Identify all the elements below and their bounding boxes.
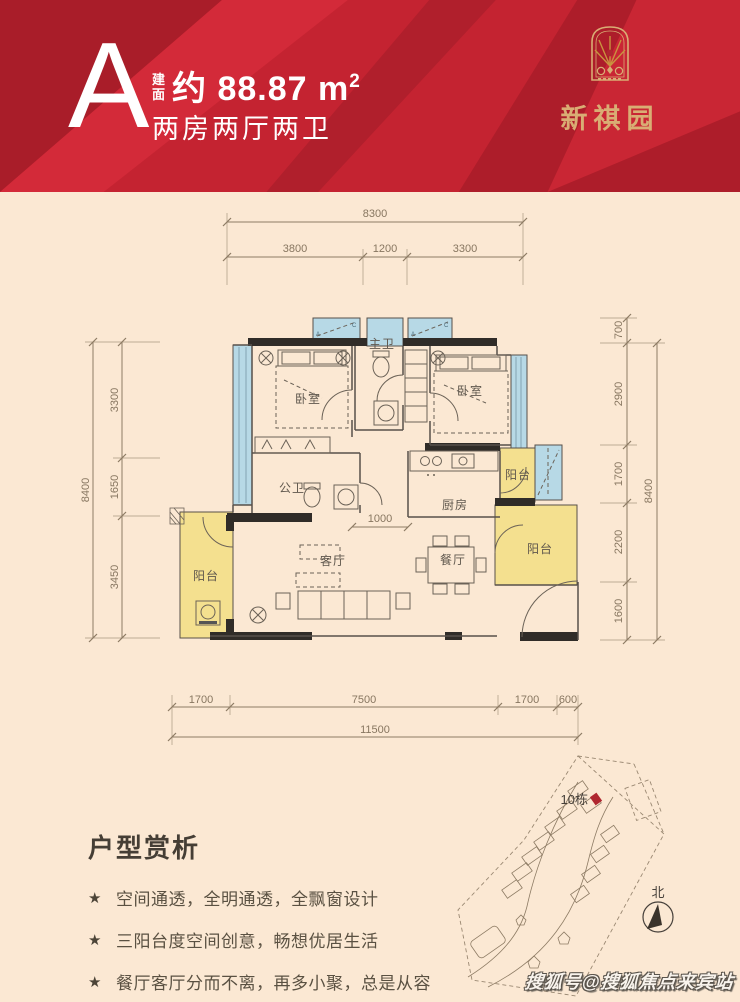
brand-logo: 新祺园: [530, 22, 690, 136]
dim-top-seg: 3800: [283, 243, 307, 255]
dimension-inner: 1000: [348, 513, 412, 531]
area-prefix-char: 面: [152, 88, 165, 102]
ac-label: C: [444, 323, 449, 329]
brand-emblem-icon: [587, 22, 633, 84]
area-prefix-char: 建: [152, 73, 165, 87]
analysis-bullet-text: 空间通透，全明通透，全飘窗设计: [116, 885, 379, 910]
layout-text: 两房两厅两卫: [152, 116, 361, 143]
room-label-bedroom-left: 卧室: [295, 391, 321, 406]
dim-bottom-seg: 600: [559, 694, 577, 706]
room-label-kitchen: 厨房: [442, 497, 468, 512]
room-label-master-bath: 主卫: [369, 337, 395, 351]
analysis-bullet: ★ 三阳台度空间创意，畅想优居生活: [88, 927, 448, 952]
star-icon: ★: [88, 889, 102, 907]
dim-left-seg: 1650: [109, 475, 121, 499]
building-label: 10栋: [561, 792, 588, 807]
area-superscript: 2: [349, 71, 361, 92]
room-label-balcony-right-bottom: 阳台: [527, 541, 553, 556]
banner: A 建 面 约 88.87 m2 两房两厅两卫: [0, 0, 740, 192]
dim-left-seg: 3300: [109, 388, 121, 412]
dim-right-total: 8400: [643, 479, 655, 503]
dim-right-seg: 1700: [613, 462, 625, 486]
dim-left-total: 8400: [80, 478, 92, 502]
analysis-bullet-text: 餐厅客厅分而不离，再多小聚，总是从容: [116, 969, 431, 994]
site-roads: [468, 782, 613, 987]
dim-bottom-seg: 1700: [189, 694, 213, 706]
dimensions-right: 700 2900 1700 2200 1600 8400: [600, 314, 665, 644]
area-row: 建 面 约 88.87 m2: [152, 72, 361, 106]
analysis-bullet-text: 三阳台度空间创意，畅想优居生活: [116, 927, 379, 952]
brand-name: 新祺园: [530, 97, 690, 136]
north-compass-icon: 北: [643, 885, 673, 932]
floor-plan: 8300 3800 1200 3300 8400 3300 1650 3450: [0, 195, 740, 765]
poster-page: A 建 面 约 88.87 m2 两房两厅两卫: [0, 0, 740, 1002]
star-icon: ★: [88, 973, 102, 991]
area-prefix: 建 面: [152, 73, 165, 106]
room-label-bedroom-right: 卧室: [457, 383, 483, 398]
room-label-balcony-right-top: 阳台: [505, 467, 531, 482]
unit-type-letter: A: [68, 18, 149, 152]
star-icon: ★: [88, 931, 102, 949]
ac-label: A: [316, 332, 320, 338]
room-label-public-bath: 公卫: [279, 481, 305, 495]
dim-top-seg: 1200: [373, 243, 397, 255]
dim-right-seg: 1600: [613, 599, 625, 623]
dim-inner-width: 1000: [368, 513, 392, 525]
analysis-section: 户型赏析 ★ 空间通透，全明通透，全飘窗设计 ★ 三阳台度空间创意，畅想优居生活…: [88, 828, 448, 994]
watermark: 搜狐号@搜狐焦点来宾站: [524, 968, 735, 994]
dim-right-seg: 700: [613, 321, 625, 339]
dimensions-left: 8400 3300 1650 3450: [80, 338, 160, 642]
dim-bottom-seg: 7500: [352, 694, 376, 706]
analysis-bullet: ★ 餐厅客厅分而不离，再多小聚，总是从容: [88, 969, 448, 994]
area-value: 约 88.87 m2: [172, 72, 361, 106]
dim-right-seg: 2200: [613, 530, 625, 554]
analysis-bullet: ★ 空间通透，全明通透，全飘窗设计: [88, 885, 448, 910]
ac-label: A: [411, 332, 415, 338]
dimensions-bottom: 1700 7500 1700 600 11500: [168, 694, 582, 745]
dim-bottom-seg: 1700: [515, 694, 539, 706]
dimensions-top: 8300 3800 1200 3300: [223, 208, 527, 285]
ac-label: C: [352, 323, 357, 329]
room-label-living: 客厅: [320, 553, 346, 568]
dim-left-seg: 3450: [109, 565, 121, 589]
room-label-balcony-left: 阳台: [193, 568, 219, 583]
dim-top-total: 8300: [363, 208, 387, 220]
analysis-title: 户型赏析: [88, 828, 448, 865]
dim-bottom-total: 11500: [360, 724, 390, 736]
room-label-dining: 餐厅: [440, 552, 466, 567]
north-label: 北: [651, 885, 664, 900]
site-map: 10栋 北: [428, 742, 740, 1000]
dim-top-seg: 3300: [453, 243, 477, 255]
dim-right-seg: 2900: [613, 382, 625, 406]
unit-info: 建 面 约 88.87 m2 两房两厅两卫: [152, 72, 361, 143]
